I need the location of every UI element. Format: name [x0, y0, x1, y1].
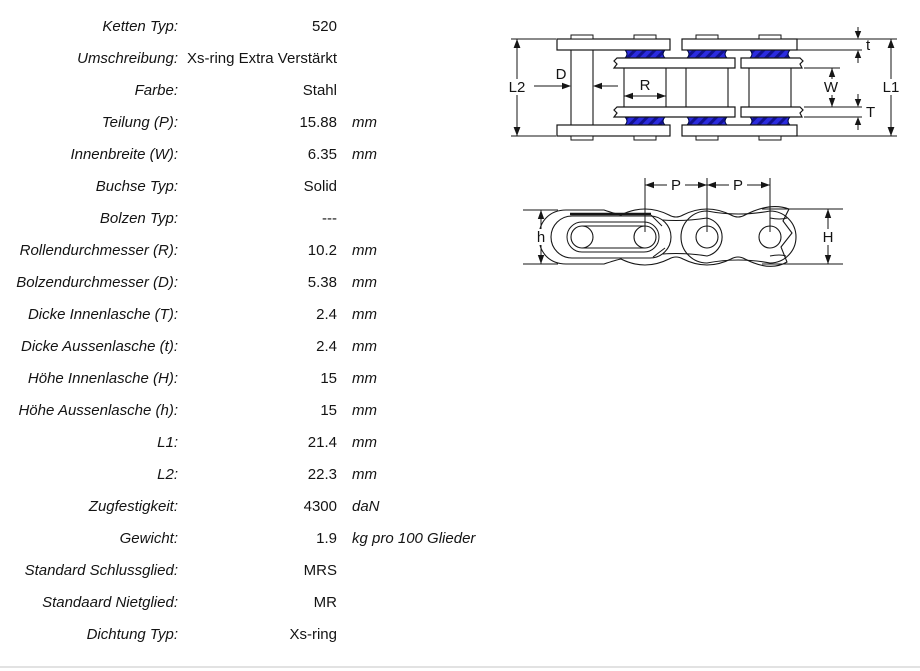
spec-unit: mm — [352, 139, 377, 171]
spec-value: 1.9 — [178, 523, 337, 555]
spec-row: Bolzendurchmesser (D):5.38mm — [0, 267, 480, 299]
dim-label-h-small: h — [537, 229, 545, 246]
spec-label: Dicke Aussenlasche (t): — [0, 331, 178, 363]
spec-row: Bolzen Typ:--- — [0, 203, 480, 235]
spec-value: Xs-ring — [178, 619, 337, 651]
spec-label: Standaard Nietglied: — [0, 587, 178, 619]
spec-unit: mm — [352, 427, 377, 459]
spec-value: 15 — [178, 363, 337, 395]
spec-value: 6.35 — [178, 139, 337, 171]
spec-label: Innenbreite (W): — [0, 139, 178, 171]
spec-label: Bolzen Typ: — [0, 203, 178, 235]
chain-top-view-diagram: L2 D R t W T L1 — [460, 0, 920, 165]
spec-value: 15.88 — [178, 107, 337, 139]
spec-unit: mm — [352, 299, 377, 331]
spec-row: Innenbreite (W):6.35mm — [0, 139, 480, 171]
spec-label: Ketten Typ: — [0, 11, 178, 43]
spec-label: Dicke Innenlasche (T): — [0, 299, 178, 331]
spec-row: L1:21.4mm — [0, 427, 480, 459]
dim-label-l2: L2 — [509, 79, 526, 96]
dim-label-w: W — [824, 79, 839, 96]
spec-row: Dichtung Typ:Xs-ring — [0, 619, 480, 651]
spec-label: Bolzendurchmesser (D): — [0, 267, 178, 299]
spec-unit: daN — [352, 491, 380, 523]
spec-row: Höhe Aussenlasche (h):15mm — [0, 395, 480, 427]
spec-row: Dicke Aussenlasche (t):2.4mm — [0, 331, 480, 363]
spec-value: MR — [178, 587, 337, 619]
chain-side-view-diagram: P P h H — [460, 165, 920, 300]
spec-row: Umschreibung:Xs-ring Extra Verstärkt — [0, 43, 480, 75]
spec-value: 15 — [178, 395, 337, 427]
spec-row: L2:22.3mm — [0, 459, 480, 491]
spec-label: Dichtung Typ: — [0, 619, 178, 651]
spec-unit: mm — [352, 235, 377, 267]
spec-unit: mm — [352, 107, 377, 139]
spec-label: Höhe Aussenlasche (h): — [0, 395, 178, 427]
spec-value: Stahl — [178, 75, 337, 107]
spec-label: Teilung (P): — [0, 107, 178, 139]
spec-value: 22.3 — [178, 459, 337, 491]
spec-value: --- — [178, 203, 337, 235]
dim-label-h-big: H — [823, 229, 834, 246]
dim-label-p2: P — [733, 177, 743, 194]
spec-unit: kg pro 100 Glieder — [352, 523, 475, 555]
spec-label: Farbe: — [0, 75, 178, 107]
dim-label-r: R — [640, 77, 651, 94]
spec-label: L2: — [0, 459, 178, 491]
spec-row: Standaard Nietglied:MR — [0, 587, 480, 619]
spec-value: 4300 — [178, 491, 337, 523]
spec-unit: mm — [352, 363, 377, 395]
spec-label: Gewicht: — [0, 523, 178, 555]
spec-value: MRS — [178, 555, 337, 587]
spec-label: Standard Schlussglied: — [0, 555, 178, 587]
spec-unit: mm — [352, 459, 377, 491]
spec-row: Farbe:Stahl — [0, 75, 480, 107]
dim-label-p1: P — [671, 177, 681, 194]
spec-value: 2.4 — [178, 331, 337, 363]
spec-value: 2.4 — [178, 299, 337, 331]
spec-table: Ketten Typ:520 Umschreibung:Xs-ring Extr… — [0, 11, 480, 651]
spec-unit: mm — [352, 331, 377, 363]
spec-label: Buchse Typ: — [0, 171, 178, 203]
spec-value: 21.4 — [178, 427, 337, 459]
spec-row: Gewicht:1.9kg pro 100 Glieder — [0, 523, 480, 555]
spec-row: Teilung (P):15.88mm — [0, 107, 480, 139]
spec-value: 10.2 — [178, 235, 337, 267]
bottom-divider — [0, 666, 920, 668]
spec-row: Ketten Typ:520 — [0, 11, 480, 43]
spec-row: Zugfestigkeit:4300daN — [0, 491, 480, 523]
spec-unit: mm — [352, 395, 377, 427]
spec-value: Solid — [178, 171, 337, 203]
spec-value: 520 — [178, 11, 337, 43]
dim-label-t-big: T — [866, 104, 875, 121]
spec-label: L1: — [0, 427, 178, 459]
spec-row: Rollendurchmesser (R):10.2mm — [0, 235, 480, 267]
spec-sheet: Ketten Typ:520 Umschreibung:Xs-ring Extr… — [0, 0, 920, 671]
spec-row: Höhe Innenlasche (H):15mm — [0, 363, 480, 395]
spec-row: Buchse Typ:Solid — [0, 171, 480, 203]
spec-value: Xs-ring Extra Verstärkt — [178, 43, 337, 75]
spec-label: Zugfestigkeit: — [0, 491, 178, 523]
spec-row: Dicke Innenlasche (T):2.4mm — [0, 299, 480, 331]
dim-label-l1: L1 — [883, 79, 900, 96]
dim-label-t-small: t — [866, 37, 871, 54]
spec-row: Standard Schlussglied:MRS — [0, 555, 480, 587]
spec-label: Rollendurchmesser (R): — [0, 235, 178, 267]
spec-unit: mm — [352, 267, 377, 299]
spec-value: 5.38 — [178, 267, 337, 299]
dim-label-d: D — [556, 66, 567, 83]
spec-label: Höhe Innenlasche (H): — [0, 363, 178, 395]
spec-label: Umschreibung: — [0, 43, 178, 75]
